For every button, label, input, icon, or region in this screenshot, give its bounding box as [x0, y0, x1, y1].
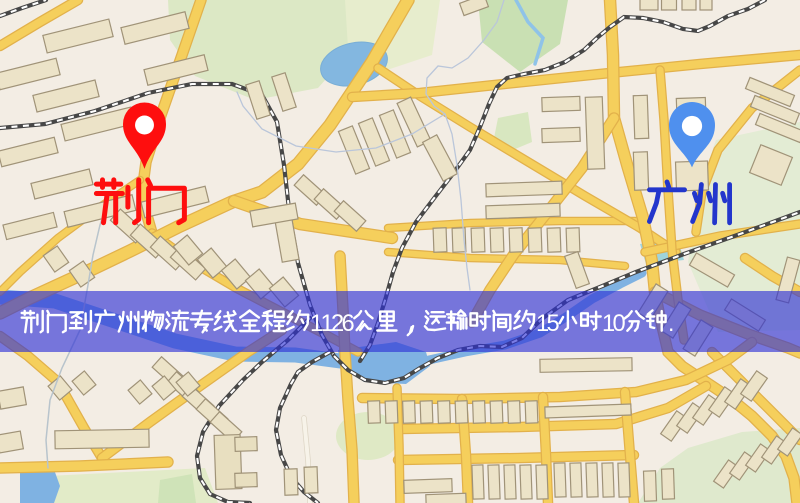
- svg-text:5: 5: [547, 311, 560, 337]
- svg-text:6: 6: [342, 311, 355, 337]
- svg-text:0: 0: [613, 311, 626, 337]
- svg-text:.: .: [668, 310, 674, 336]
